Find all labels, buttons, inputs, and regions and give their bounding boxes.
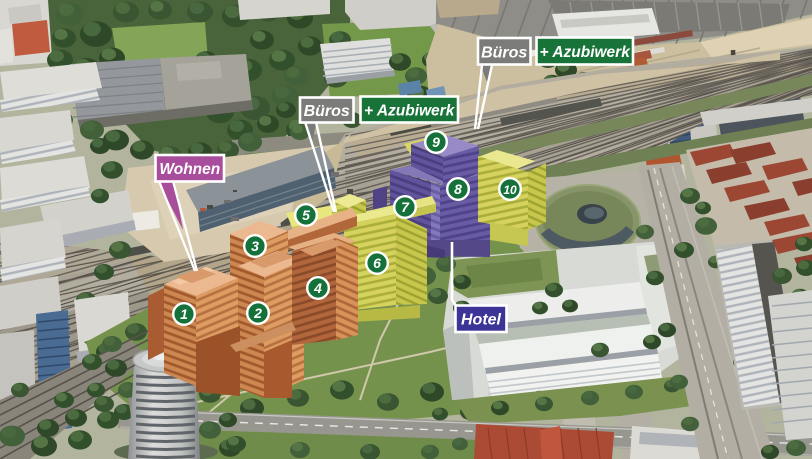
svg-text:Büros: Büros <box>304 103 350 120</box>
svg-text:Büros: Büros <box>481 45 527 62</box>
svg-text:Wohnen: Wohnen <box>159 161 220 178</box>
svg-text:10: 10 <box>503 183 517 197</box>
svg-text:6: 6 <box>373 255 381 271</box>
svg-text:4: 4 <box>313 280 322 296</box>
svg-text:Hotel: Hotel <box>461 312 502 329</box>
svg-text:+ Azubiwerk: + Azubiwerk <box>364 103 456 120</box>
svg-text:2: 2 <box>253 305 262 321</box>
svg-text:+ Azubiwerk: + Azubiwerk <box>540 44 632 61</box>
svg-text:8: 8 <box>454 181 462 197</box>
svg-text:7: 7 <box>401 199 410 215</box>
svg-text:1: 1 <box>180 306 188 322</box>
svg-text:3: 3 <box>251 238 259 254</box>
svg-text:9: 9 <box>432 134 440 150</box>
svg-text:5: 5 <box>302 207 310 223</box>
